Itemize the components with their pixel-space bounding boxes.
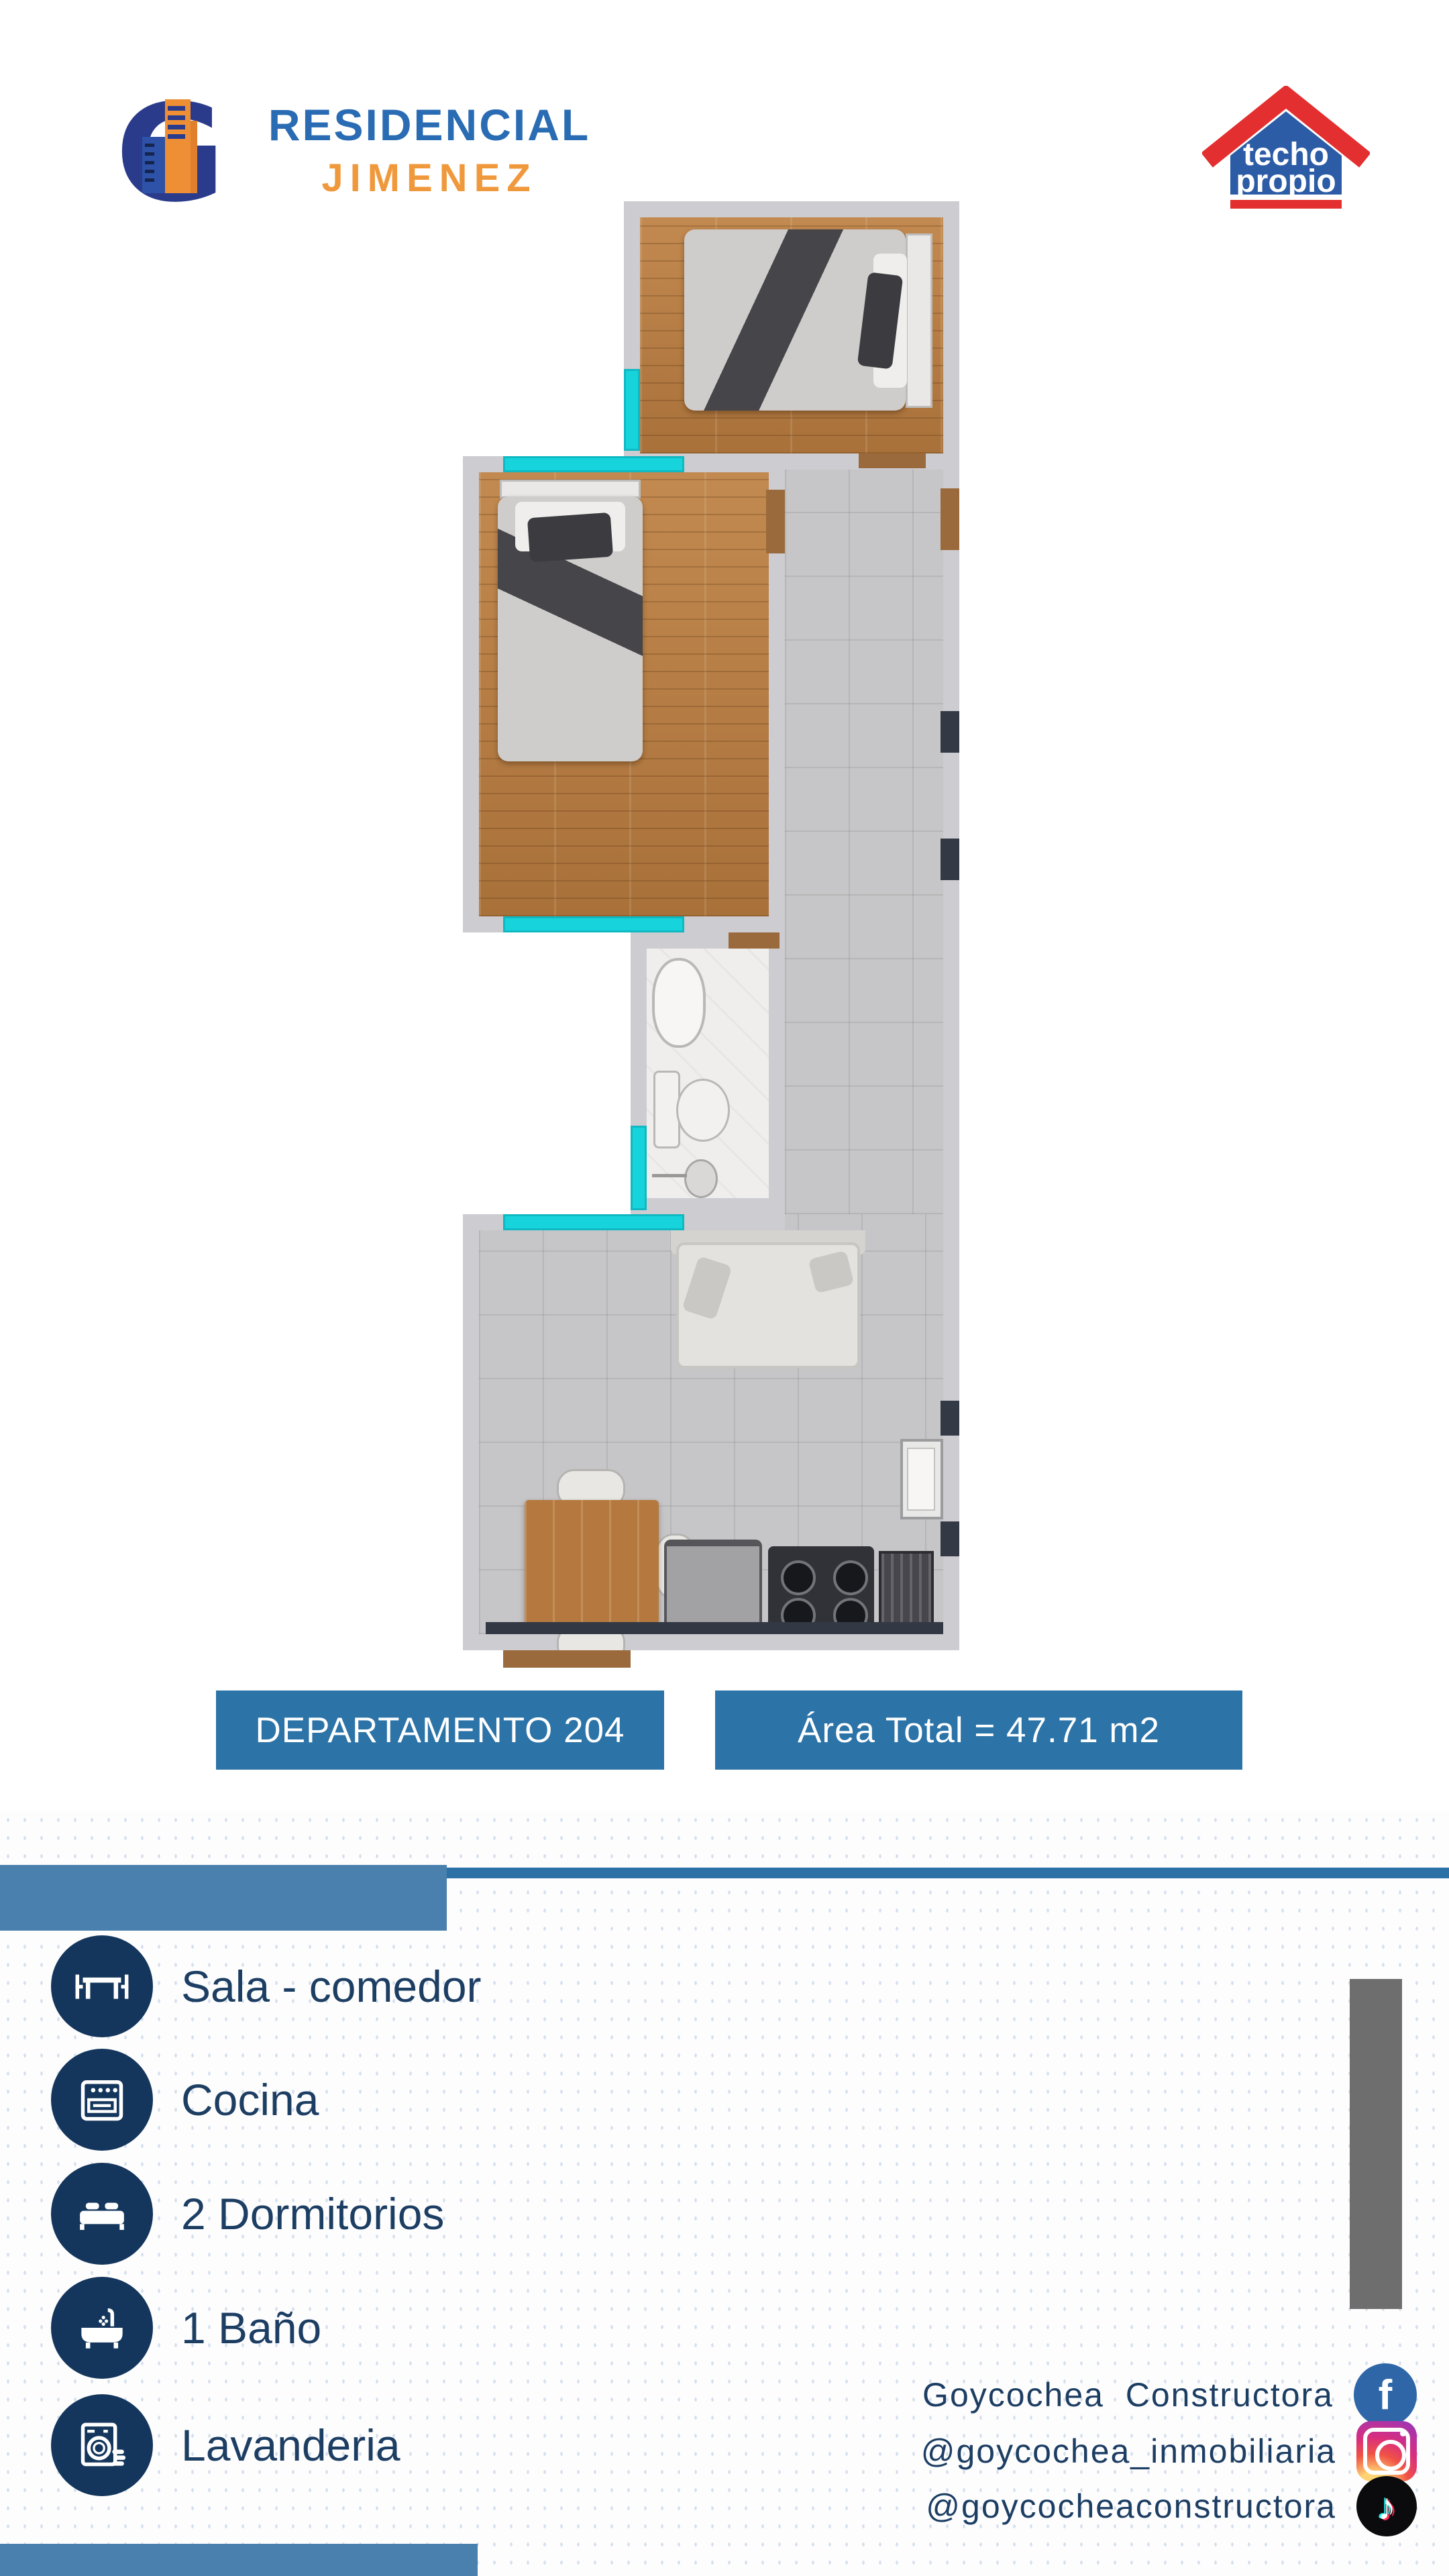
logo-underline	[1230, 200, 1342, 209]
feature-lavanderia: Lavanderia	[51, 2392, 400, 2499]
area-banner-label: Área Total = 47.71 m2	[798, 1710, 1160, 1751]
feature-sala-comedor: Sala - comedor	[51, 1933, 482, 2040]
flyer: G RESIDENCIAL JIMENEZ techo propio	[0, 0, 1449, 2576]
kitchen-counter	[879, 1551, 934, 1633]
bed-icon	[51, 2163, 153, 2265]
propio-text: propio	[1236, 164, 1336, 199]
brand-line1: RESIDENCIAL	[255, 99, 604, 150]
social-facebook: Goycochea Constructora f	[922, 2363, 1417, 2427]
brand-title: RESIDENCIAL JIMENEZ	[255, 99, 604, 201]
bed-2-headboard	[500, 480, 641, 498]
bottom-section: Sala - comedor Cocina	[0, 1811, 1449, 2576]
toilet-bowl	[676, 1079, 730, 1142]
brand-line2: JIMENEZ	[255, 156, 604, 201]
instagram-icon	[1356, 2421, 1417, 2481]
feature-label: 1 Baño	[181, 2302, 321, 2353]
bedroom-2-door	[766, 490, 785, 553]
dining-table-icon	[51, 1935, 153, 2037]
kitchen-sink-basin	[907, 1448, 935, 1511]
facebook-icon: f	[1354, 2363, 1417, 2426]
bed-2-pillow-dark	[527, 513, 613, 562]
dining-table	[525, 1500, 659, 1625]
stove-icon	[51, 2049, 153, 2151]
social-label: Goycochea Constructora	[922, 2375, 1334, 2414]
living-window	[503, 1214, 684, 1230]
floor-plan	[463, 201, 959, 1654]
wall-notch	[941, 839, 959, 880]
wall-notch	[941, 711, 959, 753]
tiktok-icon: ♪	[1356, 2476, 1417, 2536]
feature-bano: 1 Baño	[51, 2274, 321, 2381]
plan-side-bar	[1350, 1979, 1402, 2309]
bathroom-window	[631, 1126, 647, 1210]
unit-banner-label: DEPARTAMENTO 204	[255, 1710, 625, 1751]
bedroom-1-window	[624, 369, 640, 451]
feature-dormitorios: 2 Dormitorios	[51, 2160, 444, 2267]
bathroom-sink	[652, 958, 706, 1048]
wall-notch	[941, 1401, 959, 1436]
bathtub-icon	[51, 2277, 153, 2379]
fridge	[664, 1540, 762, 1633]
entry-door	[941, 488, 959, 550]
feature-label: Sala - comedor	[181, 1961, 482, 2012]
living-dark-baseline	[486, 1622, 943, 1634]
bedroom-2-window-bottom	[503, 916, 684, 932]
goycochea-logo: G	[101, 87, 255, 218]
unit-banner: DEPARTAMENTO 204	[216, 1690, 664, 1770]
shower-head	[684, 1159, 718, 1198]
feature-label: Cocina	[181, 2074, 319, 2125]
shower-arm	[652, 1174, 687, 1177]
corridor	[785, 470, 943, 1214]
divider-block	[0, 1865, 447, 1931]
bathroom-door	[729, 932, 780, 949]
footer-bar	[0, 2544, 478, 2576]
burner	[781, 1560, 816, 1595]
feature-label: 2 Dormitorios	[181, 2188, 444, 2239]
burner	[833, 1560, 868, 1595]
bedroom-2-window-top	[503, 456, 684, 472]
feature-cocina: Cocina	[51, 2046, 319, 2153]
bed-1-headboard	[906, 233, 932, 408]
laundry-door	[503, 1650, 631, 1668]
social-tiktok: @goycocheaconstructora ♪	[926, 2474, 1417, 2538]
feature-label: Lavanderia	[181, 2420, 400, 2471]
area-banner: Área Total = 47.71 m2	[715, 1690, 1242, 1770]
washing-machine-icon	[51, 2394, 153, 2496]
techo-propio-logo: techo propio	[1202, 86, 1370, 220]
social-label: @goycocheaconstructora	[926, 2487, 1336, 2526]
social-label: @goycochea_inmobiliaria	[921, 2432, 1336, 2471]
bedroom-1-door	[859, 453, 926, 468]
wall-notch	[941, 1521, 959, 1556]
